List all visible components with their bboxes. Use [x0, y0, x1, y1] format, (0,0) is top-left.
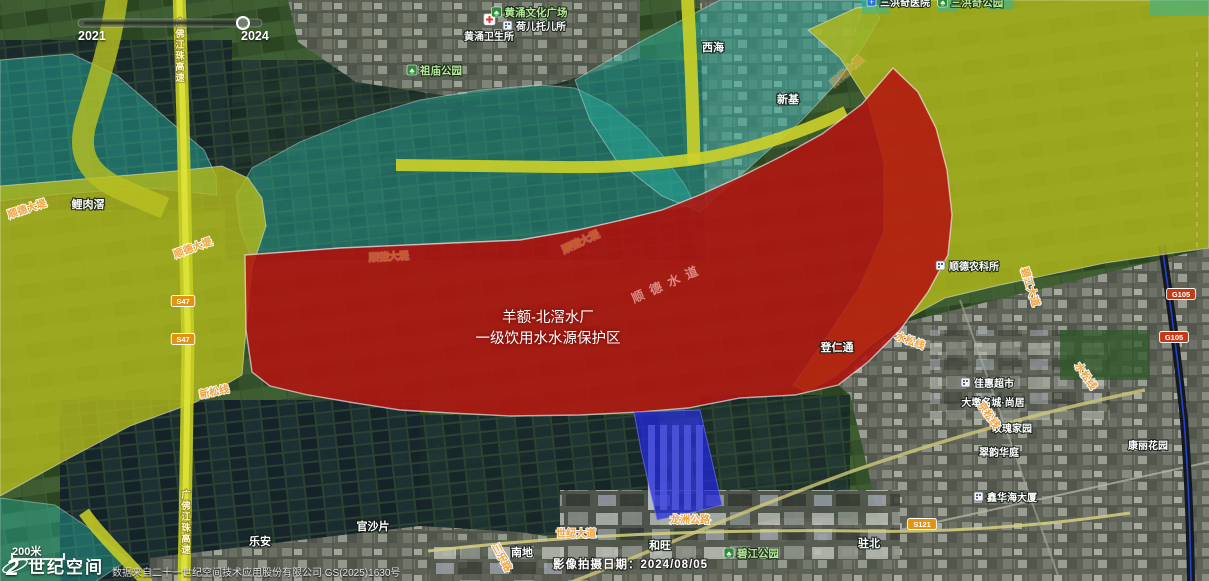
attribution-text: 数据来自二十一世纪空间技术应用股份有限公司 GS(2025)1630号	[112, 566, 400, 579]
svg-text:南地: 南地	[511, 545, 533, 559]
timeline-end-year: 2024	[241, 29, 269, 43]
building-icon	[936, 261, 945, 270]
svg-text:♣: ♣	[940, 0, 946, 8]
svg-text:登仁通: 登仁通	[820, 340, 854, 354]
map-label: 乐安	[249, 534, 271, 548]
map-label: 鲤肉滘	[71, 197, 105, 211]
map-label: 世纪大道	[556, 527, 596, 540]
timeline-start-year: 2021	[78, 29, 106, 43]
building-icon	[503, 21, 512, 30]
svg-text:大墩名城·尚居: 大墩名城·尚居	[961, 396, 1024, 409]
map-viewport[interactable]: 鲤肉滘西海新基乐安官沙片南地和旺驻北登仁通大墩名城·尚居玫瑰家园翠韵华庭康丽花园…	[0, 0, 1209, 581]
timeline-track-inner	[84, 22, 236, 25]
svg-text:乐安: 乐安	[249, 534, 271, 548]
tree-icon: ♣	[492, 7, 502, 18]
map-label: ♣碧江公园	[724, 547, 779, 560]
map-label: ♣祖庙公园	[407, 64, 462, 77]
svg-text:黄涌文化广场: 黄涌文化广场	[505, 6, 568, 19]
road-shield: G105	[1167, 289, 1196, 300]
tree-icon: ♣	[938, 0, 948, 8]
map-label: 西海	[702, 40, 724, 54]
svg-text:佳惠超市: 佳惠超市	[974, 377, 1014, 390]
building-icon	[961, 378, 970, 387]
map-label: 驻北	[858, 536, 880, 550]
logo-mark: 2	[5, 554, 19, 580]
road-shield: G105	[1160, 332, 1189, 343]
map-label: 官沙片	[357, 519, 390, 533]
svg-text:龙洲公路: 龙洲公路	[669, 513, 711, 526]
svg-text:翠韵华庭: 翠韵华庭	[979, 446, 1020, 459]
svg-text:祖庙公园: 祖庙公园	[419, 64, 462, 77]
svg-text:广佛江珠高速: 广佛江珠高速	[180, 489, 191, 556]
logo-text: 世纪空间	[28, 557, 104, 577]
map-canvas[interactable]: 鲤肉滘西海新基乐安官沙片南地和旺驻北登仁通大墩名城·尚居玫瑰家园翠韵华庭康丽花园…	[0, 0, 1209, 581]
svg-text:+: +	[869, 0, 874, 7]
svg-text:世纪大道: 世纪大道	[556, 527, 596, 540]
map-label: 新基	[777, 92, 800, 106]
map-label: 南地	[511, 545, 533, 559]
tree-icon: ♣	[724, 548, 734, 559]
map-label: 和旺	[649, 538, 671, 552]
svg-text:驻北: 驻北	[858, 536, 880, 550]
map-label: 翠韵华庭	[979, 446, 1020, 459]
building-icon	[974, 492, 983, 501]
svg-text:S47: S47	[176, 297, 189, 306]
svg-text:和旺: 和旺	[649, 538, 671, 552]
svg-text:官沙片: 官沙片	[357, 519, 390, 533]
teal-patch	[1150, 0, 1209, 16]
map-label: 龙洲公路	[669, 513, 711, 526]
tree-icon: ♣	[407, 65, 417, 76]
hospital-icon: +	[867, 0, 876, 7]
svg-text:三洪奇医院: 三洪奇医院	[880, 0, 930, 9]
svg-text:G105: G105	[1165, 333, 1183, 342]
road-shield: S47	[171, 296, 195, 307]
svg-text:顺德农科所: 顺德农科所	[949, 260, 999, 273]
map-label: 广佛江珠高速	[180, 489, 191, 556]
map-label: 大墩名城·尚居	[961, 396, 1024, 409]
road-shield: S47	[171, 334, 195, 345]
svg-text:S47: S47	[176, 335, 189, 344]
capture-date-stamp: 影像拍摄日期：2024/08/05	[553, 557, 708, 571]
zone-label-line1: 羊额-北滘水厂	[502, 309, 594, 326]
road-shield: S121	[908, 519, 937, 530]
svg-text:G105: G105	[1172, 290, 1190, 299]
timeline-handle[interactable]	[237, 17, 249, 29]
map-label: 康丽花园	[1128, 439, 1168, 452]
svg-text:S121: S121	[913, 520, 931, 529]
svg-text:荷儿托儿所: 荷儿托儿所	[515, 20, 566, 33]
map-label: 登仁通	[820, 340, 854, 354]
svg-text:♣: ♣	[494, 9, 500, 18]
svg-text:三洪奇公园: 三洪奇公园	[951, 0, 1004, 9]
svg-text:新基: 新基	[777, 92, 800, 106]
svg-text:西海: 西海	[702, 40, 724, 54]
overlaid-road-north-ns[interactable]	[687, 0, 694, 164]
brand-logo: 2 世纪空间	[1, 554, 104, 580]
svg-text:鑫华海大厦: 鑫华海大厦	[986, 491, 1038, 504]
svg-text:康丽花园: 康丽花园	[1128, 439, 1168, 452]
zone-label-line2: 一级饮用水水源保护区	[476, 330, 621, 347]
svg-text:碧江公园: 碧江公园	[736, 547, 779, 560]
svg-text:♣: ♣	[409, 67, 415, 76]
svg-text:鲤肉滘: 鲤肉滘	[71, 197, 105, 211]
svg-text:♣: ♣	[726, 550, 732, 559]
svg-text:黄涌卫生所: 黄涌卫生所	[464, 30, 514, 43]
